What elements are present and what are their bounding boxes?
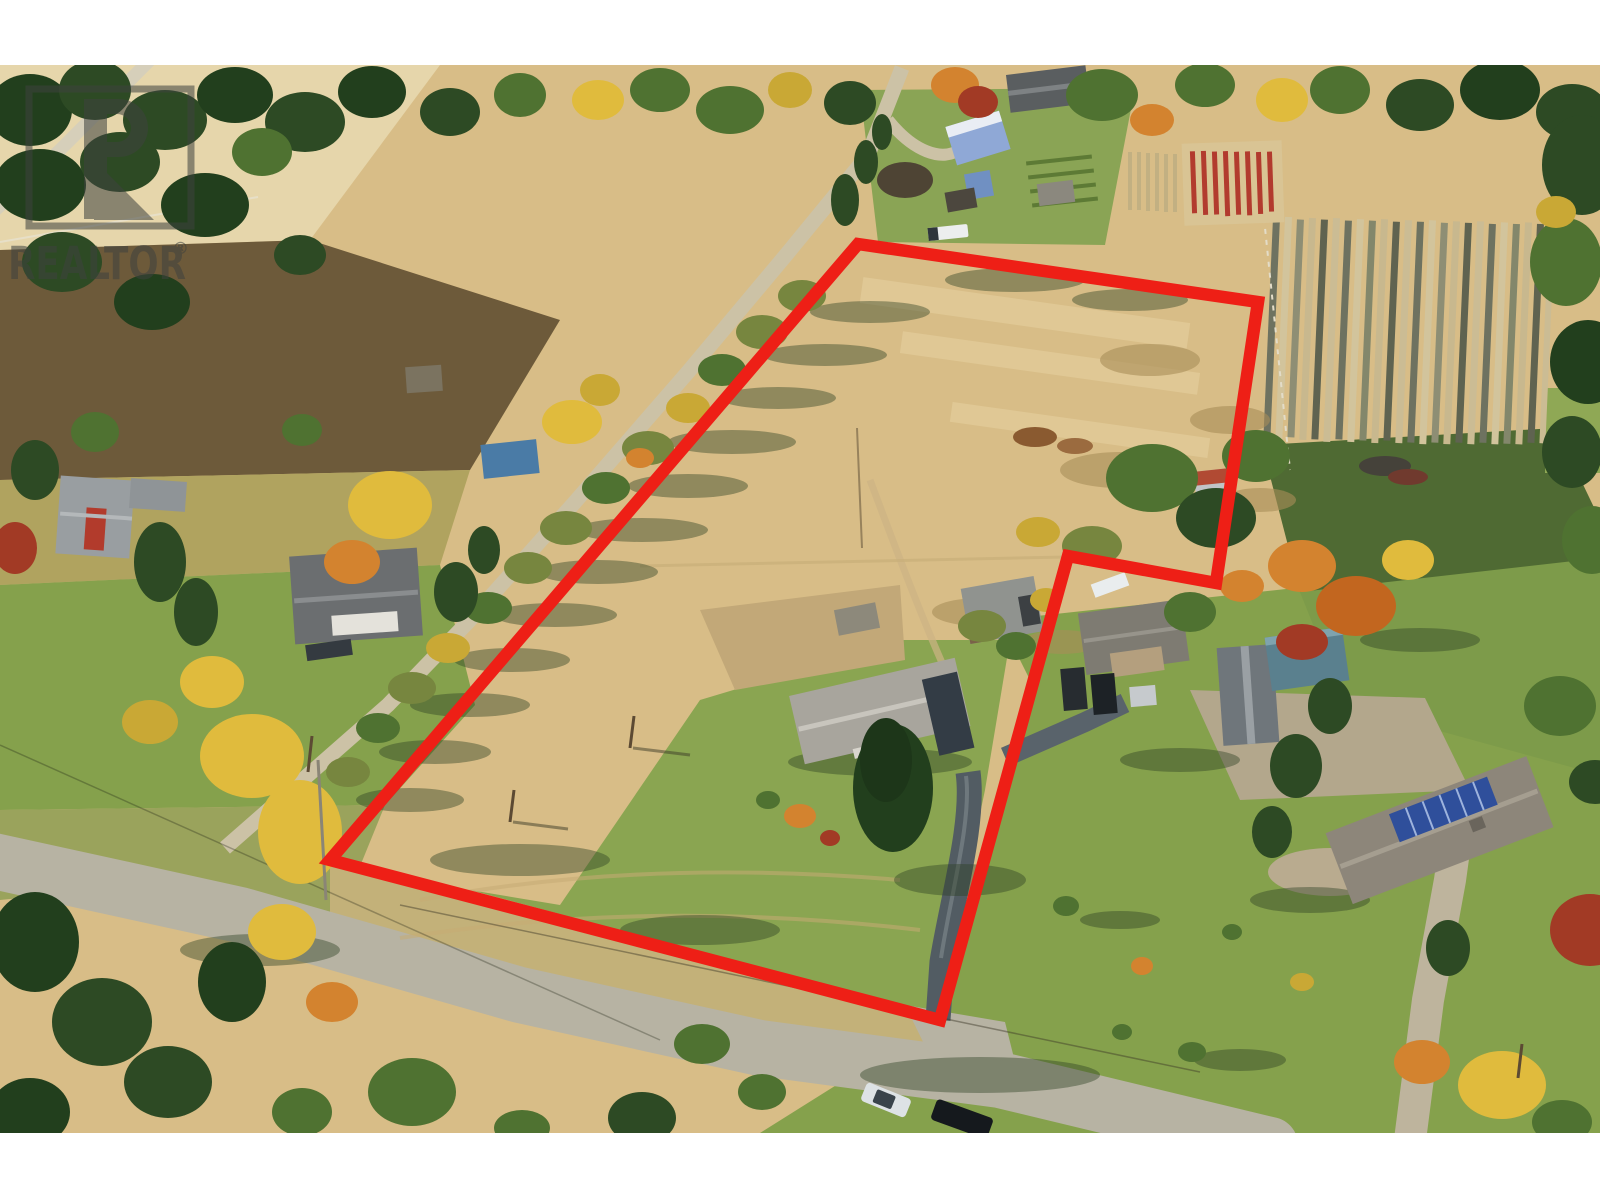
screenshot-canvas: REALTOR ®	[0, 0, 1600, 1200]
aerial-photo: REALTOR ®	[0, 0, 1600, 1200]
silver-car	[1129, 685, 1157, 707]
realtor-wordmark: REALTOR	[8, 237, 186, 290]
registered-trademark-symbol: ®	[172, 239, 189, 259]
letterbox-bottom	[0, 1133, 1600, 1200]
small-shed-west	[405, 365, 443, 393]
letterbox-top	[0, 0, 1600, 65]
dark-suv-2	[1090, 673, 1117, 715]
west-house-a	[55, 476, 134, 559]
farm-equipment	[1388, 469, 1428, 485]
brush-pile	[1013, 427, 1057, 447]
brush-pile	[1057, 438, 1093, 454]
west-garage	[129, 478, 187, 512]
farm-dirt-mound	[877, 162, 933, 198]
dark-suv-1	[1060, 667, 1088, 711]
grey-shed-farm	[1037, 180, 1075, 206]
blue-shed	[480, 439, 539, 479]
